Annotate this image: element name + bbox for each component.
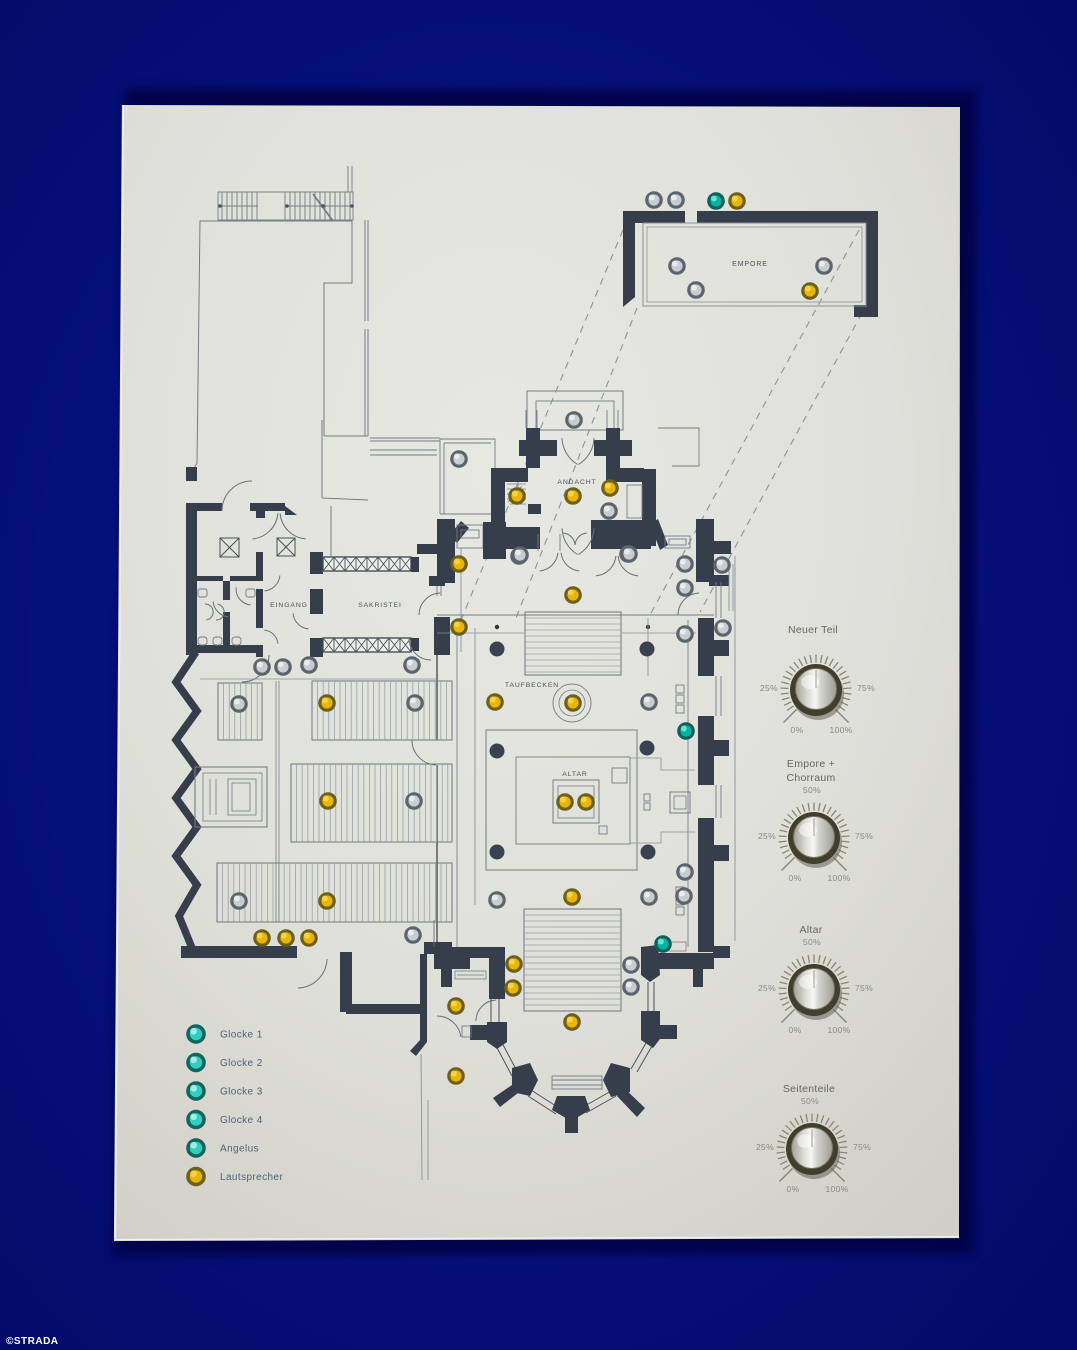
- svg-text:Altar: Altar: [799, 924, 822, 936]
- svg-text:Glocke 1: Glocke 1: [220, 1030, 263, 1041]
- svg-text:0%: 0%: [791, 725, 804, 735]
- svg-text:0%: 0%: [787, 1184, 800, 1194]
- svg-text:50%: 50%: [803, 937, 821, 947]
- svg-text:ALTAR: ALTAR: [562, 771, 587, 778]
- svg-text:Neuer Teil: Neuer Teil: [788, 624, 838, 636]
- svg-text:25%: 25%: [760, 683, 778, 693]
- svg-text:Empore +: Empore +: [787, 758, 835, 770]
- svg-text:Glocke 4: Glocke 4: [220, 1115, 263, 1126]
- svg-text:75%: 75%: [855, 831, 873, 841]
- svg-text:Chorraum: Chorraum: [786, 772, 835, 784]
- svg-text:100%: 100%: [828, 873, 851, 883]
- svg-text:Lautsprecher: Lautsprecher: [220, 1172, 283, 1183]
- svg-text:0%: 0%: [789, 873, 802, 883]
- svg-text:©STRADA: ©STRADA: [6, 1336, 59, 1347]
- svg-text:75%: 75%: [855, 983, 873, 993]
- svg-text:TAUFBECKEN: TAUFBECKEN: [505, 682, 559, 689]
- svg-text:0%: 0%: [789, 1025, 802, 1035]
- svg-text:25%: 25%: [758, 831, 776, 841]
- svg-text:Glocke 3: Glocke 3: [220, 1087, 263, 1098]
- svg-text:100%: 100%: [830, 725, 853, 735]
- svg-text:ANDACHT: ANDACHT: [557, 479, 596, 486]
- svg-text:EINGANG: EINGANG: [270, 602, 308, 609]
- svg-text:25%: 25%: [756, 1142, 774, 1152]
- svg-text:Glocke 2: Glocke 2: [220, 1058, 263, 1069]
- svg-text:Angelus: Angelus: [220, 1144, 259, 1155]
- svg-text:SAKRISTEI: SAKRISTEI: [358, 602, 402, 609]
- svg-text:100%: 100%: [828, 1025, 851, 1035]
- svg-text:75%: 75%: [853, 1142, 871, 1152]
- svg-text:75%: 75%: [857, 683, 875, 693]
- svg-text:Seitenteile: Seitenteile: [783, 1083, 835, 1095]
- svg-text:EMPORE: EMPORE: [732, 261, 768, 268]
- svg-text:100%: 100%: [826, 1184, 849, 1194]
- svg-text:25%: 25%: [758, 983, 776, 993]
- svg-text:50%: 50%: [801, 1096, 819, 1106]
- svg-text:50%: 50%: [803, 785, 821, 795]
